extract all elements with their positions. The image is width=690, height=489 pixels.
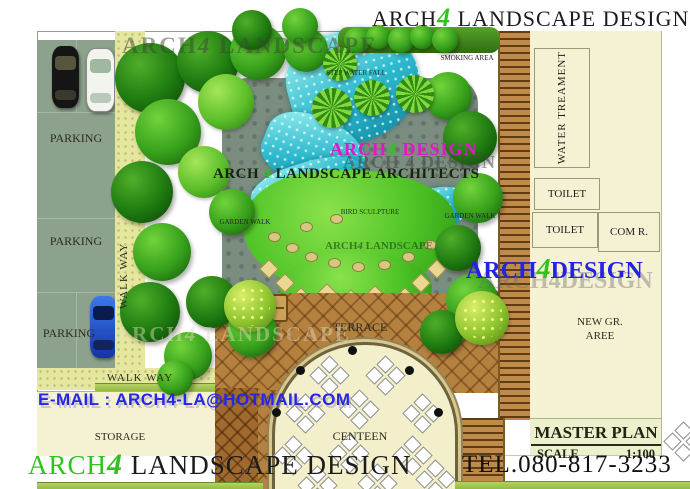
- walkway-bottom-label: WALK WAY: [90, 372, 190, 384]
- tree-symbol: [198, 74, 254, 130]
- parking-label-mid: PARKING: [40, 234, 112, 249]
- tree-symbol: [209, 189, 255, 235]
- stepping-stone: [378, 260, 391, 270]
- stepping-stone: [352, 262, 365, 272]
- palm-symbol: [396, 75, 434, 113]
- black-car-symbol: [52, 46, 79, 108]
- parking-stall-line: [37, 218, 115, 219]
- room-water-treatment: WATER TREAMENT: [534, 48, 590, 168]
- bottom-brand: ARCH4 LANDSCAPE DESIGN: [28, 448, 412, 482]
- table-symbol: [418, 462, 452, 489]
- pergola-strip: [498, 31, 534, 420]
- stepping-stone: [402, 252, 415, 262]
- storage-label: STORAGE: [60, 431, 180, 443]
- step-water-fall-label: STEP WATER FALL: [318, 69, 394, 77]
- parking-label-top: PARKING: [40, 131, 112, 146]
- column-dot: [296, 366, 305, 375]
- bottom-hedge-right: [455, 481, 690, 489]
- bottom-hedge-left: [37, 482, 263, 489]
- email-text: E-MAIL : ARCH4-LA@HOTMAIL.COM: [38, 390, 351, 410]
- parking-stall-line: [37, 112, 115, 113]
- canteen-label: CENTEEN: [315, 429, 405, 444]
- new-green-area-label: NEW GR.AREE: [558, 315, 642, 343]
- master-plan-canvas: WATER TREAMENT TOILET TOILET COM R. NEW …: [0, 0, 690, 489]
- smoking-area-label: SMOKING AREA: [436, 54, 498, 62]
- garden-walk-left-label: GARDEN WALK: [216, 218, 274, 226]
- table-symbol: [368, 358, 402, 392]
- walkway-side-label: WALK WAY: [118, 228, 142, 324]
- room-toilet-1: TOILET: [534, 178, 600, 210]
- stepping-stone: [268, 232, 281, 242]
- stepping-stone: [305, 252, 318, 262]
- column-dot: [405, 366, 414, 375]
- table-symbol: [312, 358, 346, 392]
- palm-symbol: [354, 80, 390, 116]
- room-com: COM R.: [598, 212, 660, 252]
- column-dot: [434, 408, 443, 417]
- watermark-top: ARCH4 LANDSCAPE: [122, 33, 378, 59]
- toilet-1-label: TOILET: [548, 188, 586, 200]
- watermark-architects: ARCH 4 LANDSCAPE ARCHITECTS: [213, 166, 479, 183]
- com-room-label: COM R.: [610, 226, 648, 238]
- watermark-blue: ARCH4DESIGN: [466, 254, 643, 286]
- plan-right-border: [661, 31, 662, 455]
- room-toilet-2: TOILET: [532, 212, 598, 248]
- tel-text: TEL.080-817-3233: [462, 451, 672, 479]
- water-treatment-label: WATER TREAMENT: [556, 51, 568, 164]
- flowering-tree-symbol: [455, 291, 509, 345]
- garden-walk-right-label: GARDEN WALK: [444, 212, 496, 220]
- column-dot: [348, 346, 357, 355]
- title-block-title: MASTER PLAN: [531, 423, 661, 446]
- stepping-stone: [300, 222, 313, 232]
- parking-label-bottom: PARKING: [36, 326, 102, 341]
- stepping-stone: [286, 243, 299, 253]
- toilet-2-label: TOILET: [546, 224, 584, 236]
- white-car-symbol: [86, 48, 115, 112]
- palm-symbol: [312, 88, 352, 128]
- tree-symbol: [111, 161, 173, 223]
- stepping-stone: [328, 258, 341, 268]
- watermark-left: ARCH4 LANDSCAPE: [115, 322, 351, 347]
- top-title: ARCH4 LANDSCAPE DESIGN: [372, 3, 689, 33]
- watermark-magenta: ARCH4 DESIGN: [330, 139, 478, 160]
- watermark-lawn: ARCH4 LANDSCAPE: [325, 240, 433, 252]
- sculpture-label: BIRD SCULPTURE: [332, 208, 408, 216]
